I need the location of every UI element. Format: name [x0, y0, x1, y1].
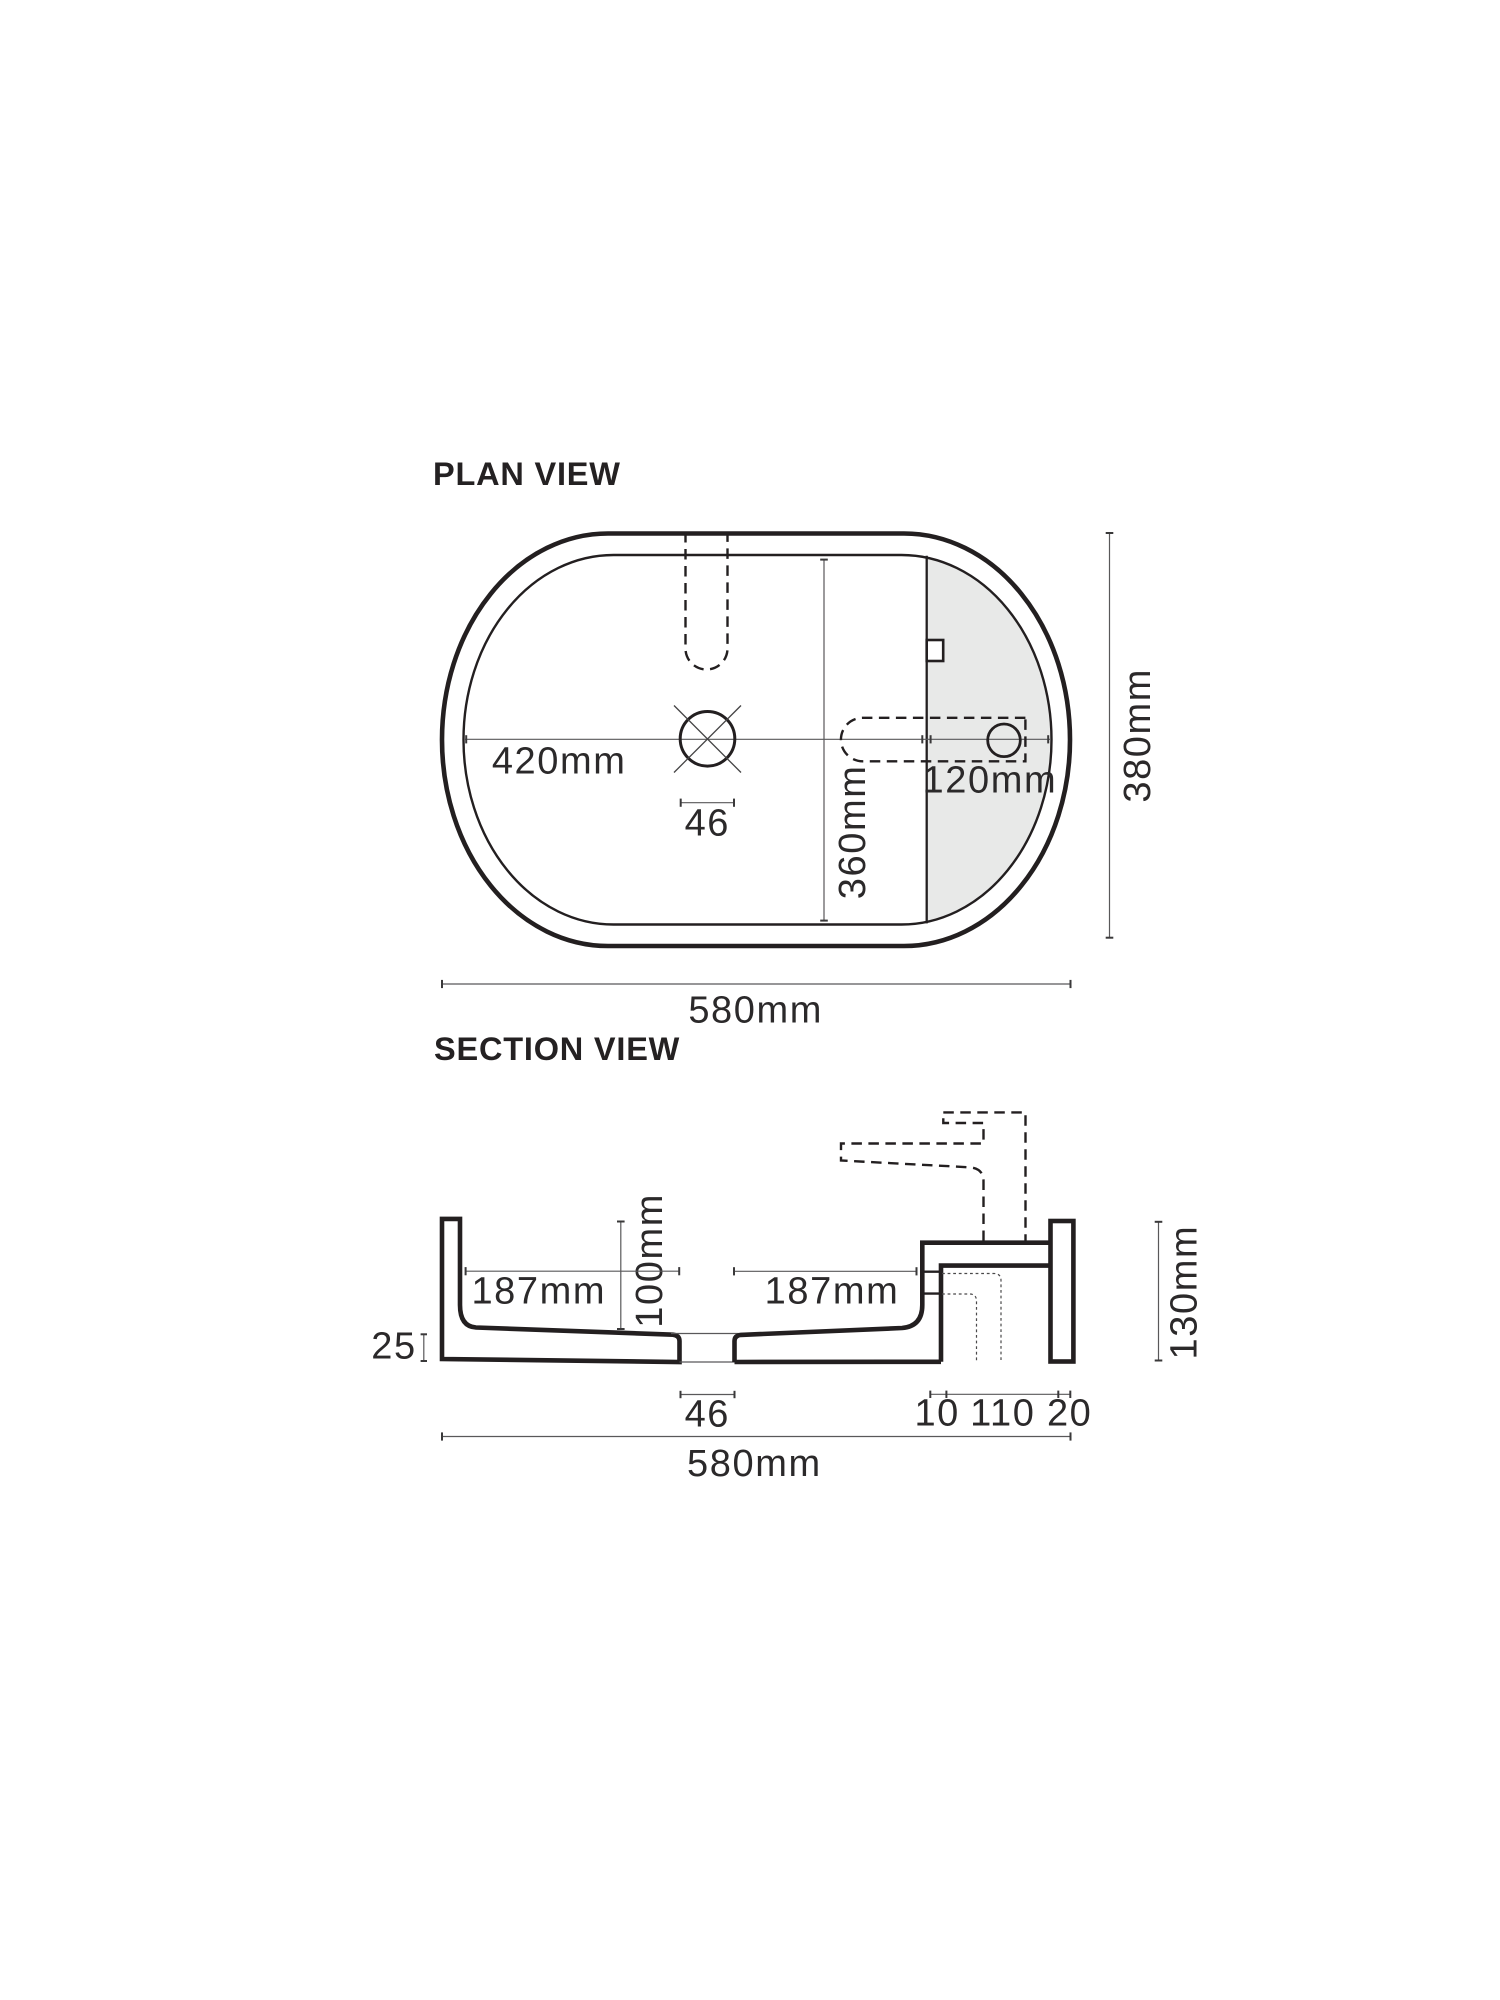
svg-text:580mm: 580mm: [688, 989, 823, 1031]
svg-text:360mm: 360mm: [832, 765, 874, 900]
svg-text:120mm: 120mm: [923, 760, 1058, 802]
svg-text:SECTION VIEW: SECTION VIEW: [434, 1031, 680, 1067]
svg-text:100mm: 100mm: [629, 1193, 671, 1328]
svg-text:46: 46: [685, 1394, 730, 1436]
svg-text:380mm: 380mm: [1117, 668, 1159, 803]
svg-text:PLAN VIEW: PLAN VIEW: [433, 456, 621, 492]
svg-text:10: 10: [914, 1393, 959, 1435]
svg-text:187mm: 187mm: [765, 1271, 900, 1313]
svg-text:420mm: 420mm: [492, 741, 627, 783]
svg-text:187mm: 187mm: [471, 1271, 606, 1313]
svg-text:110: 110: [970, 1393, 1035, 1435]
svg-text:580mm: 580mm: [687, 1443, 822, 1485]
svg-text:25: 25: [371, 1326, 416, 1368]
svg-text:130mm: 130mm: [1164, 1225, 1206, 1360]
svg-text:46: 46: [685, 803, 730, 845]
svg-text:20: 20: [1047, 1393, 1092, 1435]
